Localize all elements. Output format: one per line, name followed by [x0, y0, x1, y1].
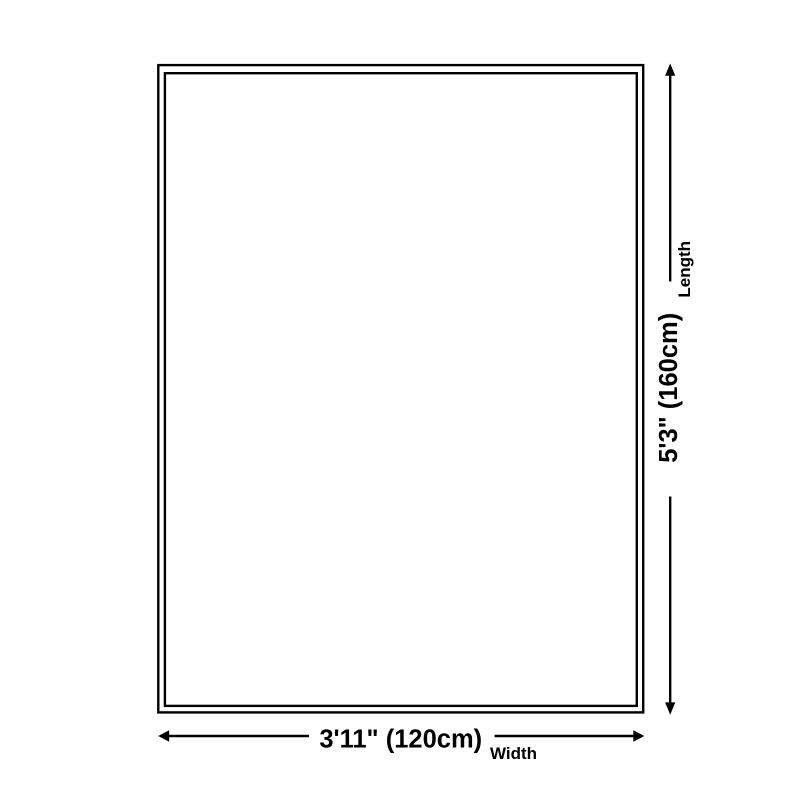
svg-text:3'11" (120cm): 3'11" (120cm) [319, 726, 482, 754]
svg-text:Length: Length [675, 241, 694, 298]
svg-text:5'3" (160cm): 5'3" (160cm) [655, 313, 683, 463]
svg-text:Width: Width [490, 744, 537, 763]
